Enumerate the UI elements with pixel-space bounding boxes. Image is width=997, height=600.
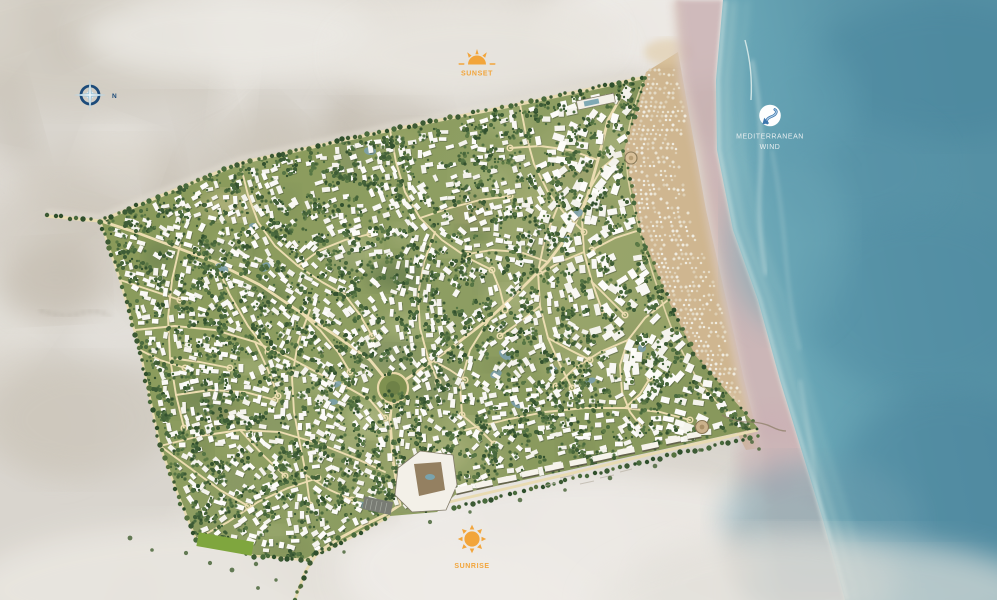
svg-text:N: N	[112, 93, 117, 100]
svg-text:MEDITERRANEAN: MEDITERRANEAN	[736, 134, 804, 141]
svg-text:SUNSET: SUNSET	[461, 71, 493, 78]
svg-text:WIND: WIND	[760, 144, 781, 151]
svg-text:SUNRISE: SUNRISE	[454, 563, 489, 570]
